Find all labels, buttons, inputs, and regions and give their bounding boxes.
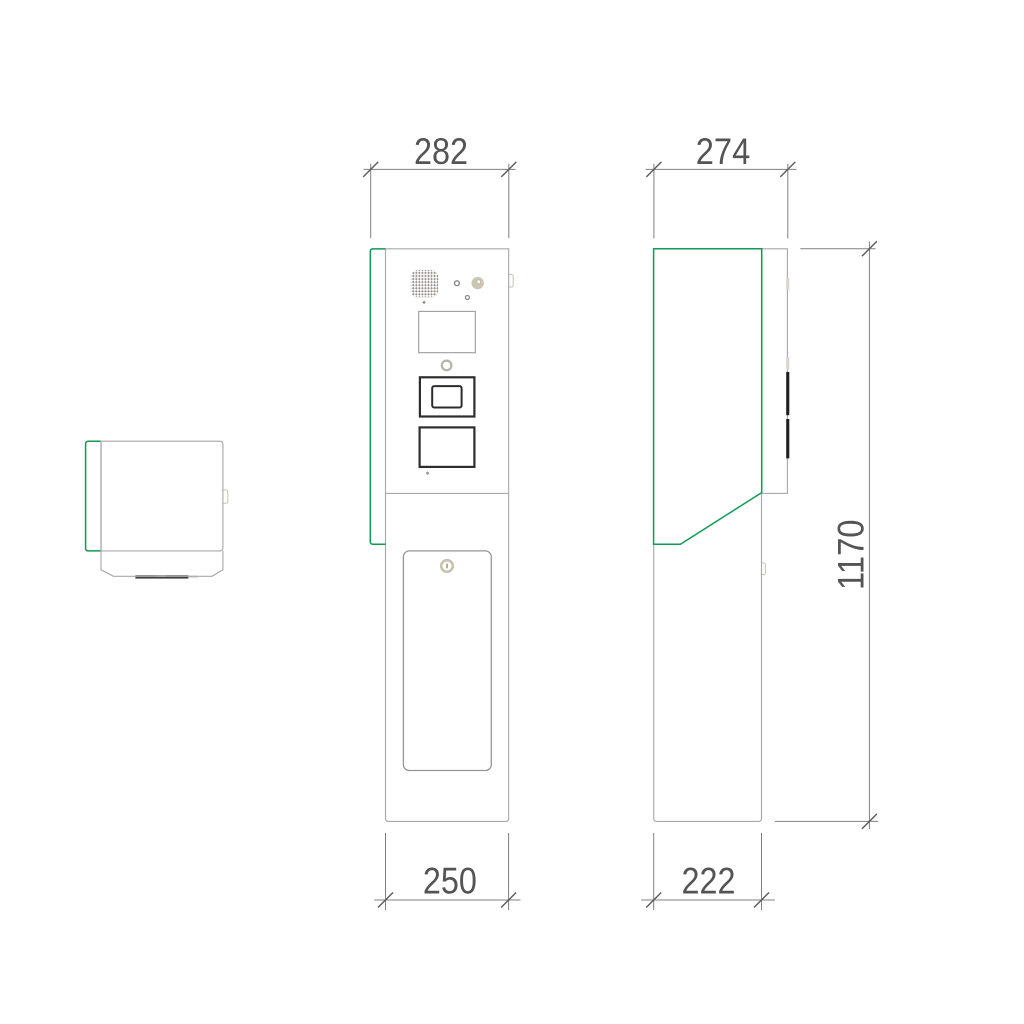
svg-text:222: 222: [682, 860, 736, 901]
svg-text:274: 274: [696, 131, 751, 172]
svg-text:1170: 1170: [830, 519, 871, 590]
svg-text:282: 282: [414, 131, 468, 172]
svg-text:250: 250: [423, 860, 477, 901]
